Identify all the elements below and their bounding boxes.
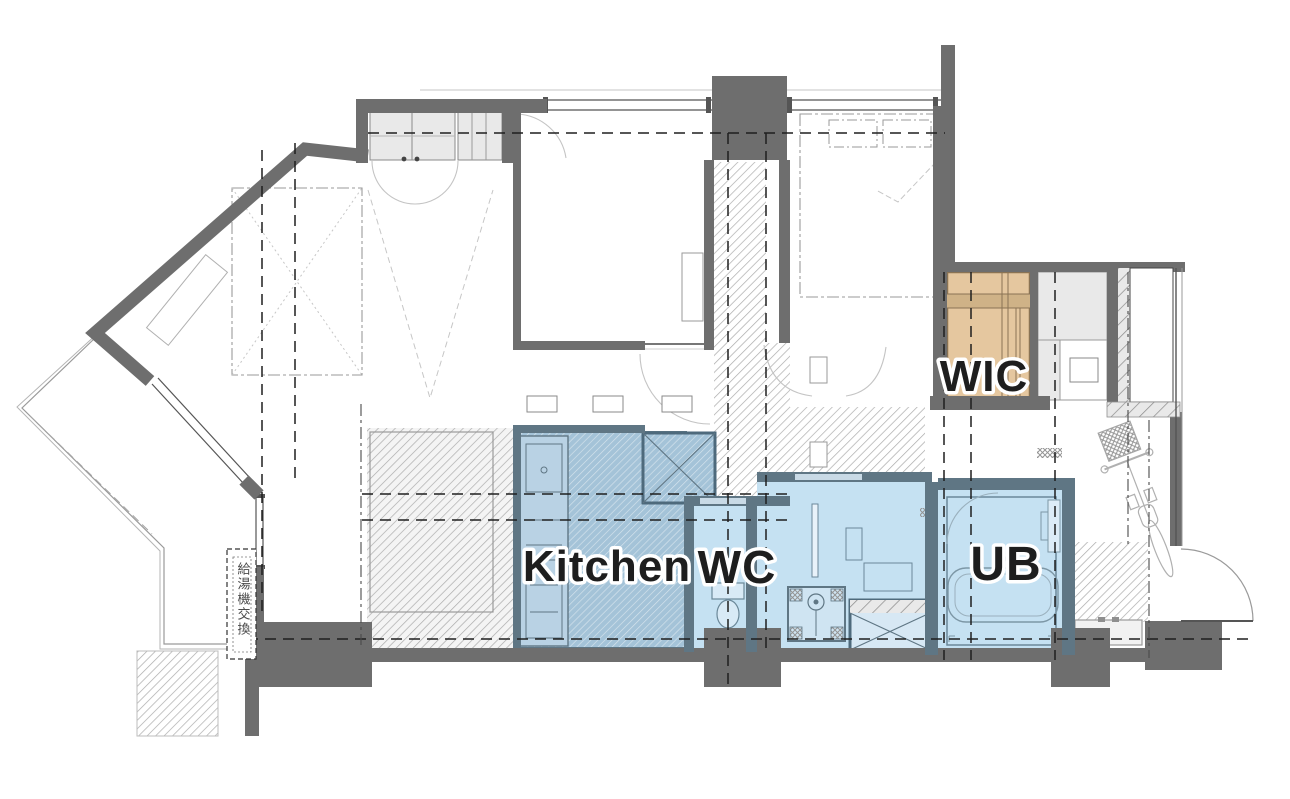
entrance-genkan-hatch: [1075, 542, 1148, 622]
entry-door-arc: [1181, 549, 1253, 621]
storage-box: [850, 600, 930, 650]
south-wall: [245, 648, 1148, 662]
wall-desk: [147, 255, 228, 346]
balcony-outline: [17, 333, 246, 736]
bed-outline: [800, 114, 938, 297]
futon-v-mark: [368, 190, 493, 398]
door-arc: [846, 347, 886, 396]
closet-door-arc: [415, 161, 458, 204]
kitchen-label: Kitchen: [523, 542, 691, 591]
balcony-window: [152, 384, 244, 484]
wall-column: [704, 628, 781, 687]
floor-plan-canvas: 給湯機交換 Kitchen WC UB WIC: [0, 0, 1290, 799]
ub-label: UB: [970, 538, 1041, 591]
bedroom-2: [527, 253, 710, 424]
cushion: [527, 396, 557, 412]
hall-closet-right: [1037, 272, 1107, 458]
water-heater-note: 給湯機交換: [227, 549, 256, 659]
bedroom-1: [147, 188, 493, 398]
desk: [682, 253, 703, 321]
bed-outline: [232, 188, 362, 375]
closet-handle: [402, 157, 407, 162]
hall-door-arc: [517, 114, 566, 158]
floor-plan: 給湯機交換 Kitchen WC UB WIC: [0, 0, 1290, 799]
closet-box: [1070, 358, 1098, 382]
pillar: [712, 76, 787, 160]
door-arc: [640, 354, 710, 424]
hall-closets: [370, 112, 566, 204]
wall-fixture: [810, 357, 827, 383]
closet-handle: [415, 157, 420, 162]
washing-machine-pan: [788, 587, 845, 641]
washroom-door: [795, 474, 862, 480]
wall-column: [1145, 621, 1222, 670]
blanket-fold: [876, 162, 936, 202]
corridor-hatch-upper: [714, 162, 766, 343]
cushion: [662, 396, 692, 412]
bicycle-basket: [1098, 421, 1140, 461]
closet-door-arc: [372, 161, 415, 204]
wic-label: WIC: [940, 352, 1029, 401]
entry-door: [1181, 549, 1253, 621]
vent: [1037, 448, 1062, 458]
washroom: [757, 482, 943, 650]
water-heater-note-text: 給湯機交換: [235, 562, 251, 637]
cushion: [593, 396, 623, 412]
mirror: [812, 504, 818, 577]
balcony-hatch-pad: [137, 651, 218, 736]
bath-counter: [1048, 500, 1060, 552]
wall-fixture: [810, 442, 827, 467]
bed-cross: [232, 188, 362, 375]
wic-hanger-band: [947, 294, 1030, 308]
wall-column: [1051, 628, 1110, 687]
wc-label: WC: [698, 541, 777, 593]
living-floor-hatch: [367, 428, 513, 648]
